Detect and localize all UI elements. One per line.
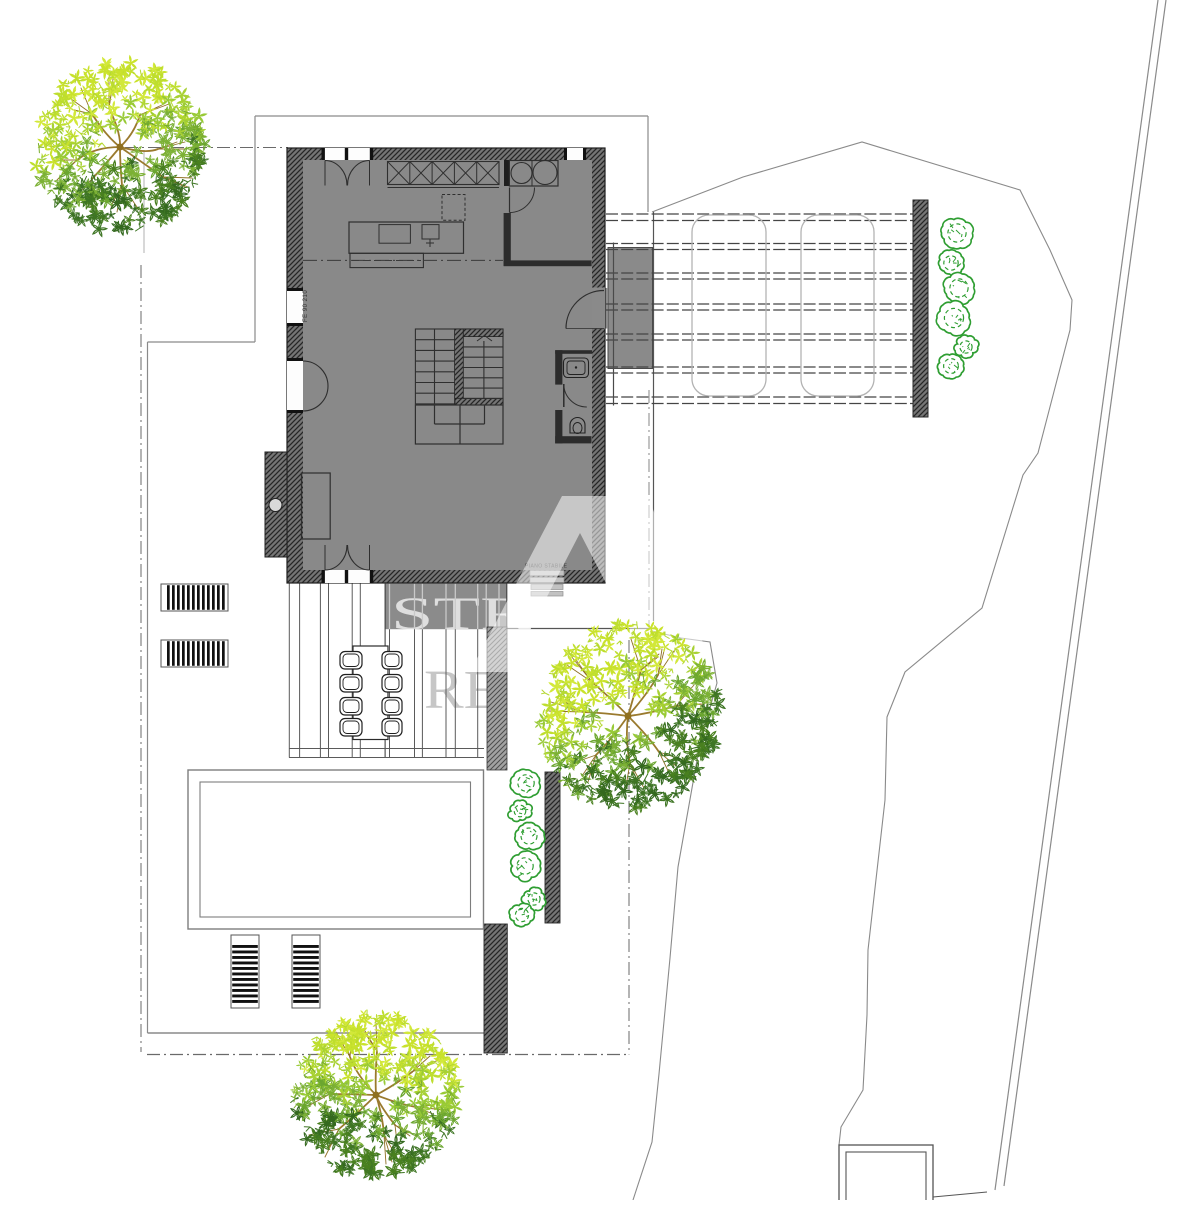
svg-text:FE 90 210: FE 90 210 bbox=[303, 290, 309, 322]
